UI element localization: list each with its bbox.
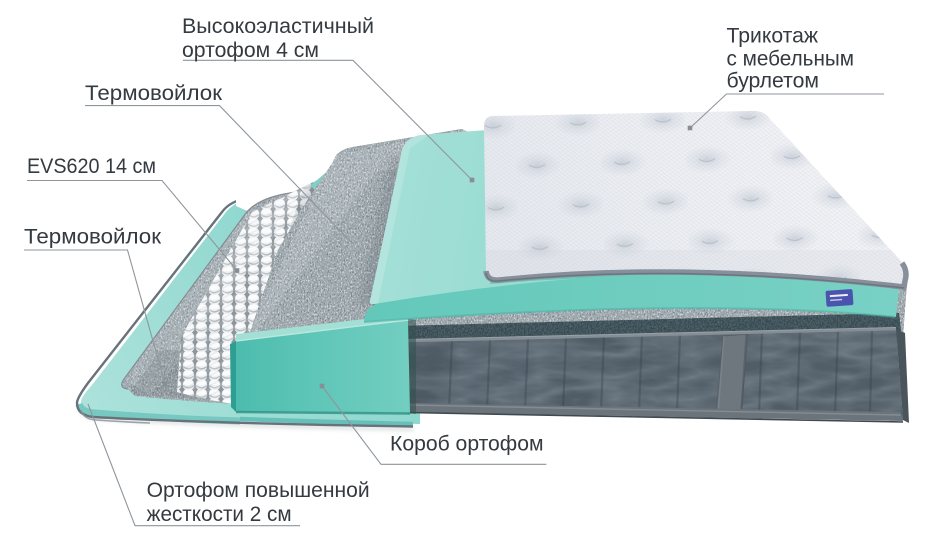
svg-text:Короб ортофом: Короб ортофом — [390, 431, 544, 455]
svg-text:Ортофом повышенной: Ортофом повышенной — [147, 478, 370, 502]
svg-text:Трикотаж: Трикотаж — [727, 23, 819, 47]
svg-text:ортофом 4 см: ортофом 4 см — [182, 38, 319, 62]
svg-text:бурлетом: бурлетом — [727, 68, 820, 92]
svg-text:EVS620 14 см: EVS620 14 см — [27, 154, 156, 178]
svg-text:с мебельным: с мебельным — [727, 46, 855, 70]
svg-text:Термовойлок: Термовойлок — [85, 81, 223, 105]
svg-text:жесткости 2 см: жесткости 2 см — [147, 502, 292, 526]
svg-text:Высокоэластичный: Высокоэластичный — [182, 14, 374, 38]
svg-text:Термовойлок: Термовойлок — [24, 224, 162, 248]
